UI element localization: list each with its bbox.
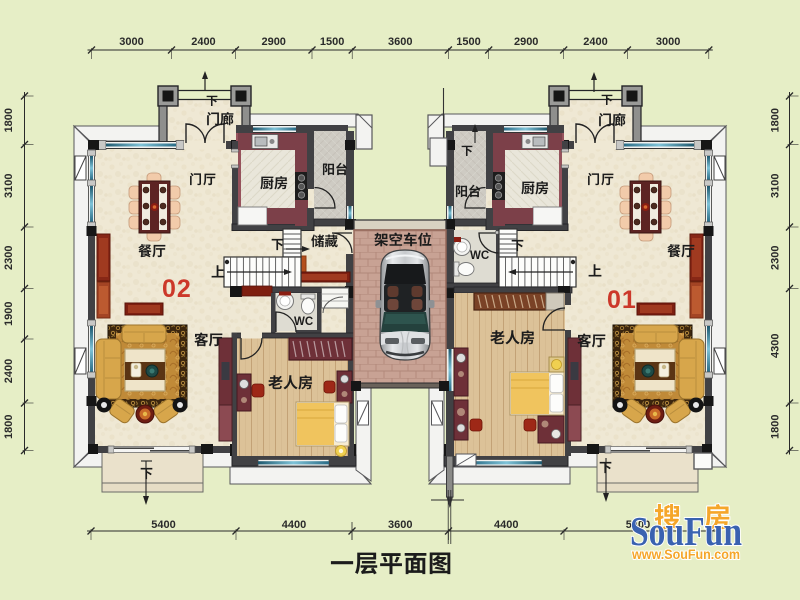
- svg-text:WC: WC: [294, 316, 313, 328]
- svg-text:1800: 1800: [770, 108, 782, 132]
- svg-text:5400: 5400: [151, 519, 175, 531]
- svg-text:2400: 2400: [191, 36, 215, 48]
- svg-text:1900: 1900: [3, 302, 15, 326]
- svg-text:3000: 3000: [656, 36, 680, 48]
- svg-text:3600: 3600: [388, 519, 412, 531]
- svg-text:WC: WC: [470, 250, 489, 262]
- svg-text:2300: 2300: [3, 246, 15, 270]
- svg-text:3100: 3100: [3, 174, 15, 198]
- svg-text:1500: 1500: [456, 36, 480, 48]
- svg-text:2900: 2900: [514, 36, 538, 48]
- svg-text:www.SouFun.com: www.SouFun.com: [631, 546, 740, 562]
- svg-text:4300: 4300: [770, 334, 782, 358]
- svg-text:3600: 3600: [388, 36, 412, 48]
- svg-text:2400: 2400: [583, 36, 607, 48]
- svg-text:4400: 4400: [494, 519, 518, 531]
- svg-text:3000: 3000: [119, 36, 143, 48]
- svg-text:1500: 1500: [320, 36, 344, 48]
- svg-text:2300: 2300: [770, 246, 782, 270]
- svg-text:1800: 1800: [3, 415, 15, 439]
- svg-text:2400: 2400: [3, 359, 15, 383]
- svg-text:1800: 1800: [3, 108, 15, 132]
- svg-text:01: 01: [607, 286, 637, 314]
- svg-text:2900: 2900: [261, 36, 285, 48]
- svg-text:3100: 3100: [770, 174, 782, 198]
- svg-text:4400: 4400: [282, 519, 306, 531]
- svg-text:02: 02: [162, 275, 192, 303]
- svg-text:1800: 1800: [770, 415, 782, 439]
